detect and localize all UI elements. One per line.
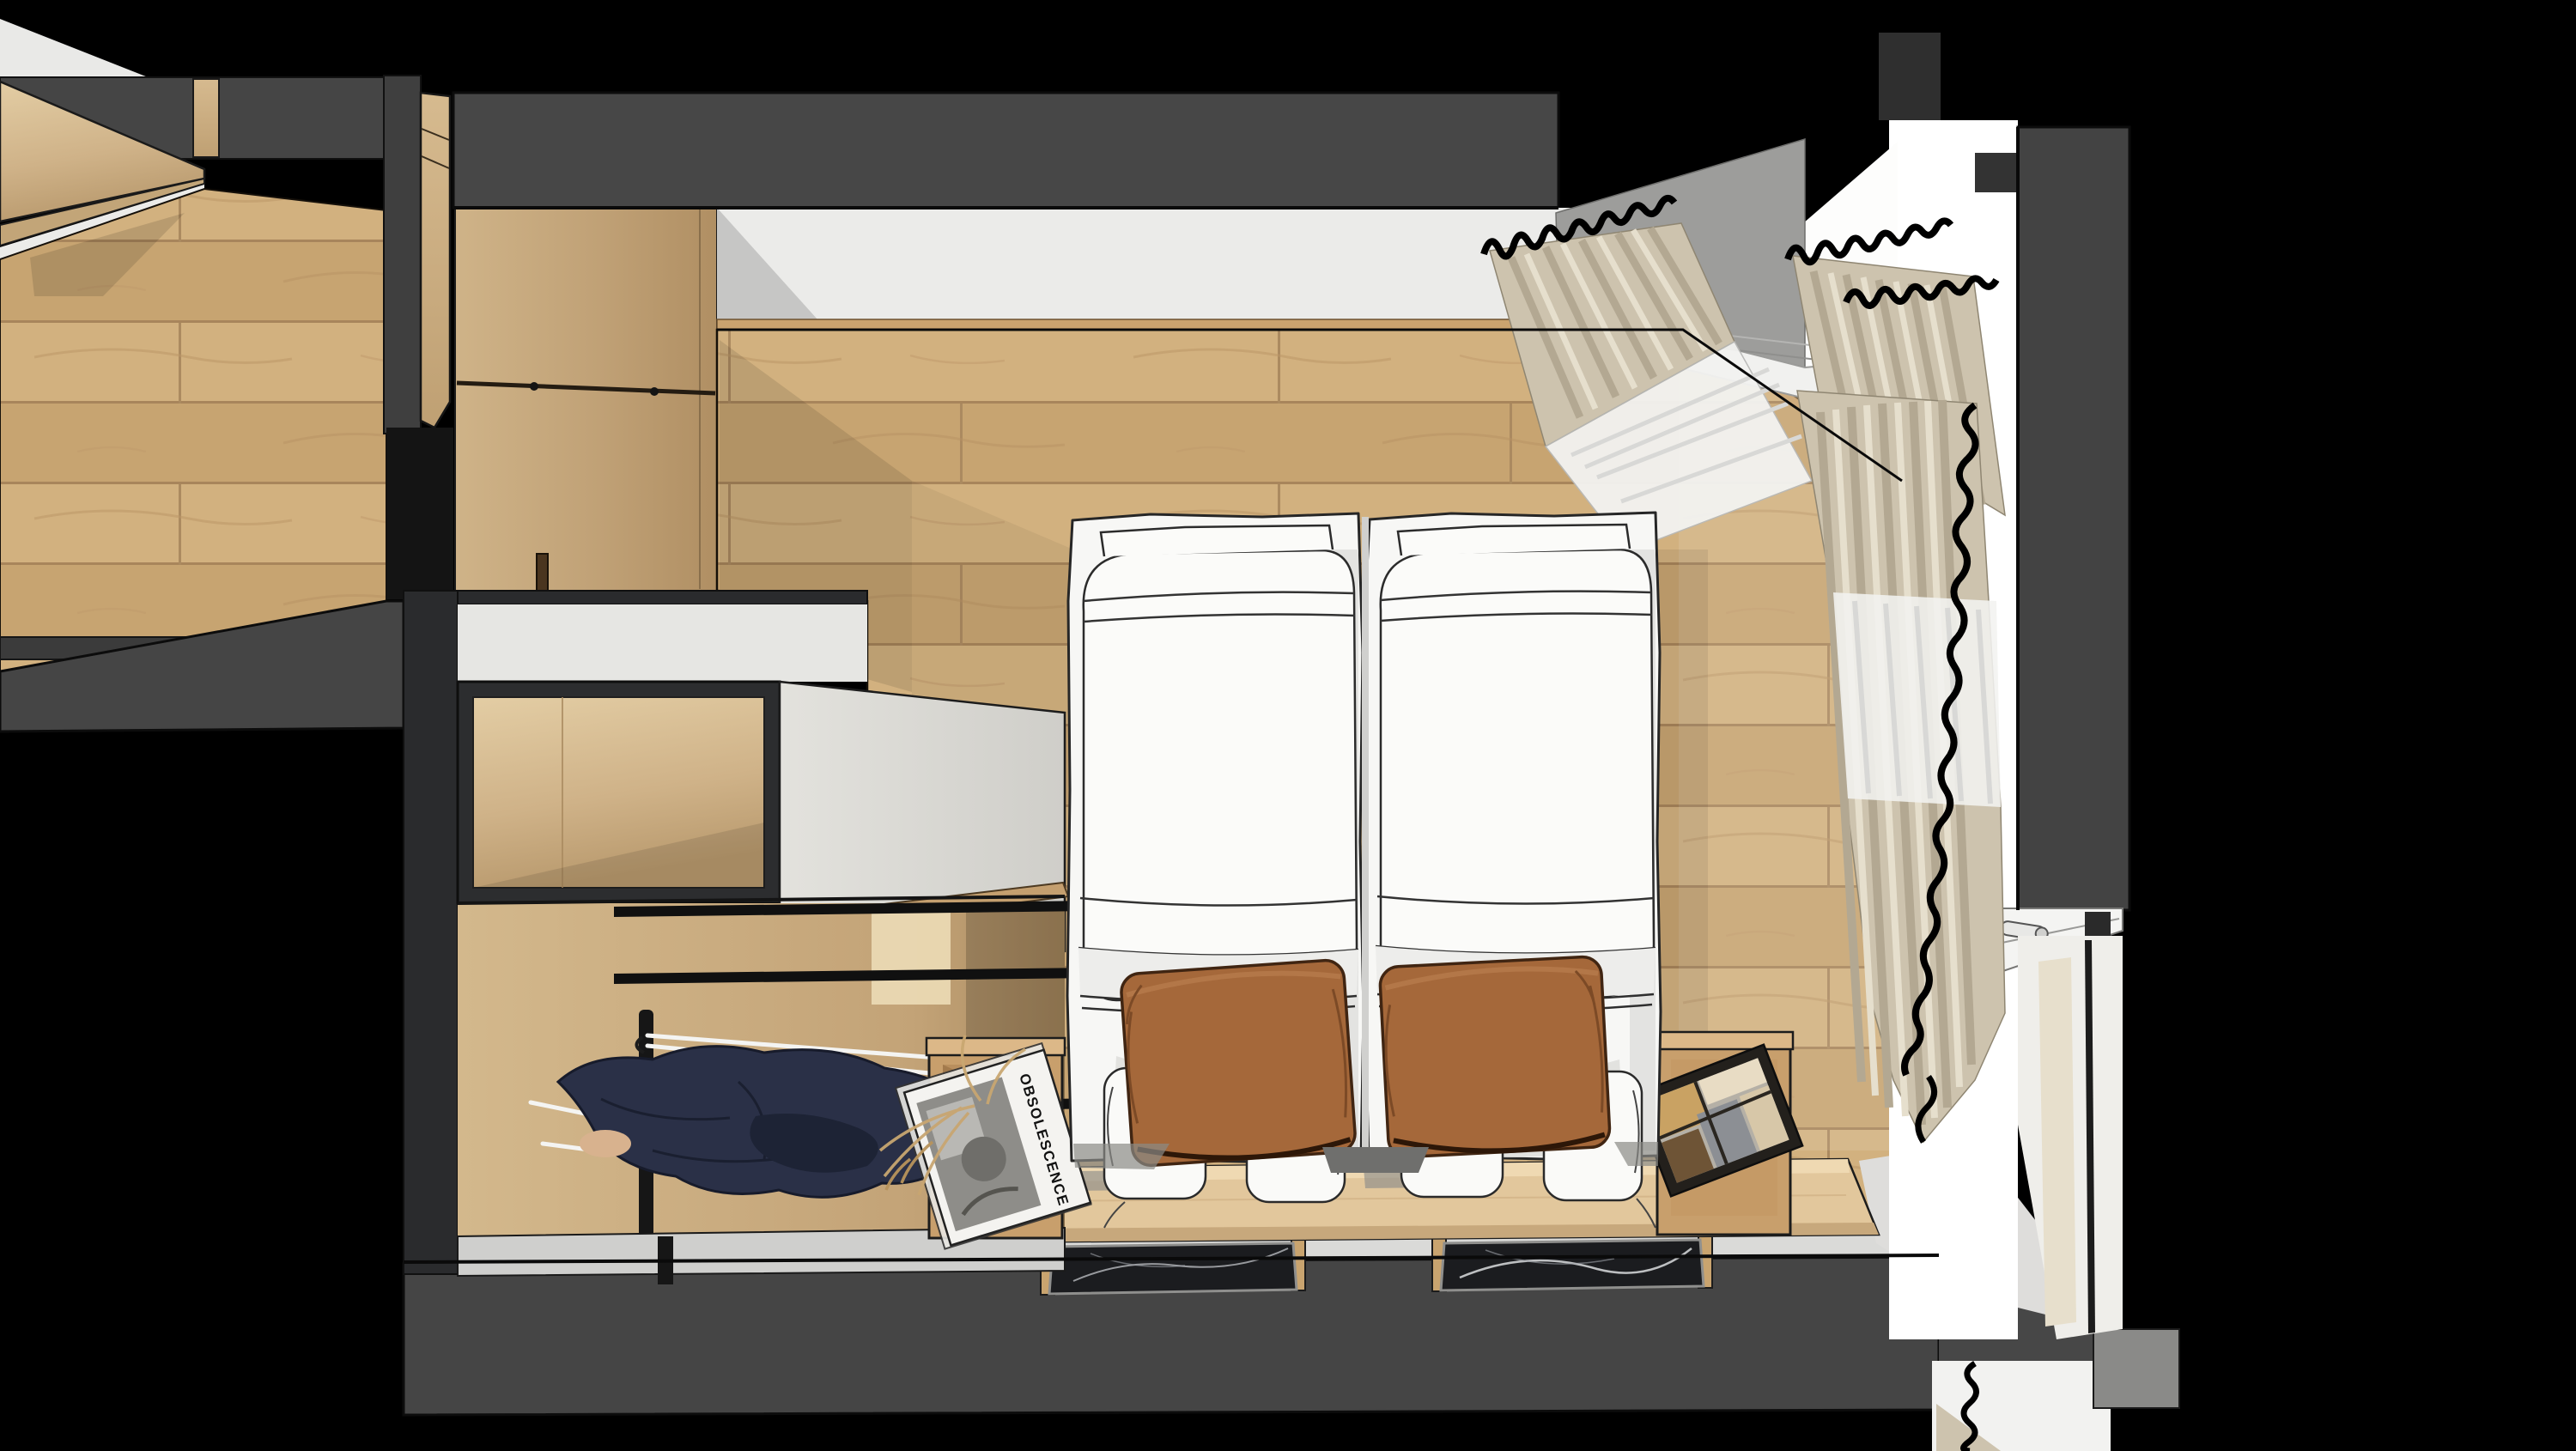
wardrobe-frame-left xyxy=(404,591,458,1274)
hallway-door-head-strip xyxy=(193,79,219,157)
bed-left xyxy=(1067,513,1364,1228)
entrance-door xyxy=(384,76,453,599)
door-leaf xyxy=(421,93,450,428)
pillow-right xyxy=(1379,956,1610,1157)
back-panel-light-patch xyxy=(872,908,951,1005)
wall-block-top xyxy=(1879,33,1941,120)
panelled-wall xyxy=(455,208,717,591)
wall-stub xyxy=(1975,153,2020,192)
sill-clip xyxy=(2085,912,2111,936)
pillow-left xyxy=(1121,959,1357,1167)
adjacent-hallway xyxy=(0,19,404,732)
duvet-right xyxy=(1381,549,1654,999)
marble-shelf-left xyxy=(1041,1237,1305,1295)
cut-wall-right xyxy=(2018,127,2129,910)
marble-shelf-right xyxy=(1432,1235,1712,1291)
door-gap-dark xyxy=(386,428,453,599)
bed-gap xyxy=(1362,517,1369,1159)
sill-block-bottom-right xyxy=(2093,1329,2179,1408)
cut-wall-top xyxy=(453,93,1558,208)
door-frame-cut xyxy=(384,76,421,434)
wardrobe-frame-top xyxy=(404,591,867,604)
garment-lining xyxy=(580,1130,631,1157)
nightstand-right-rim xyxy=(1655,1032,1793,1049)
bedroom-render: OBSOLESCENCE xyxy=(0,0,2576,1451)
bed-right xyxy=(1364,513,1661,1228)
wardrobe-shelf-white xyxy=(458,604,867,682)
